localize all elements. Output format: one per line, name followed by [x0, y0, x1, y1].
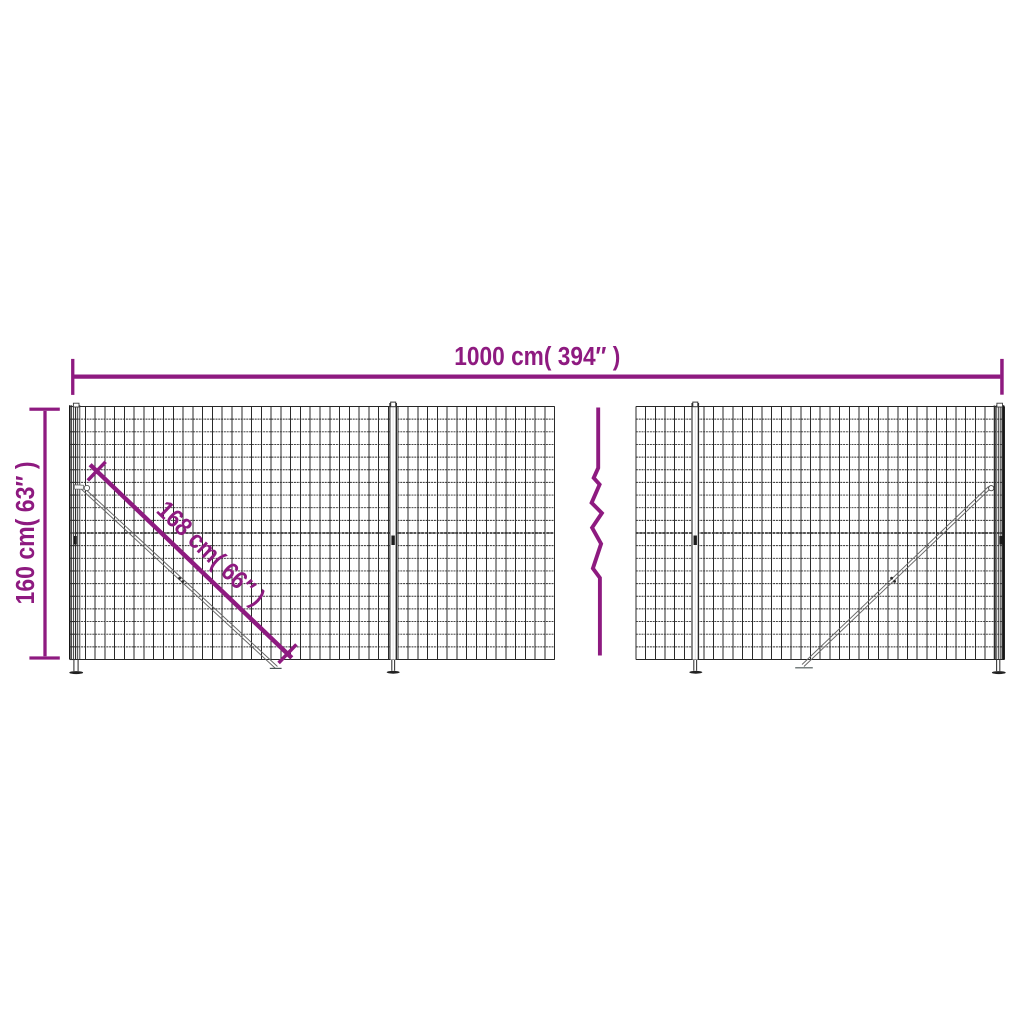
svg-text:160 cm( 63″ ): 160 cm( 63″ ) [12, 462, 40, 605]
svg-text:1000 cm( 394″ ): 1000 cm( 394″ ) [454, 343, 620, 371]
